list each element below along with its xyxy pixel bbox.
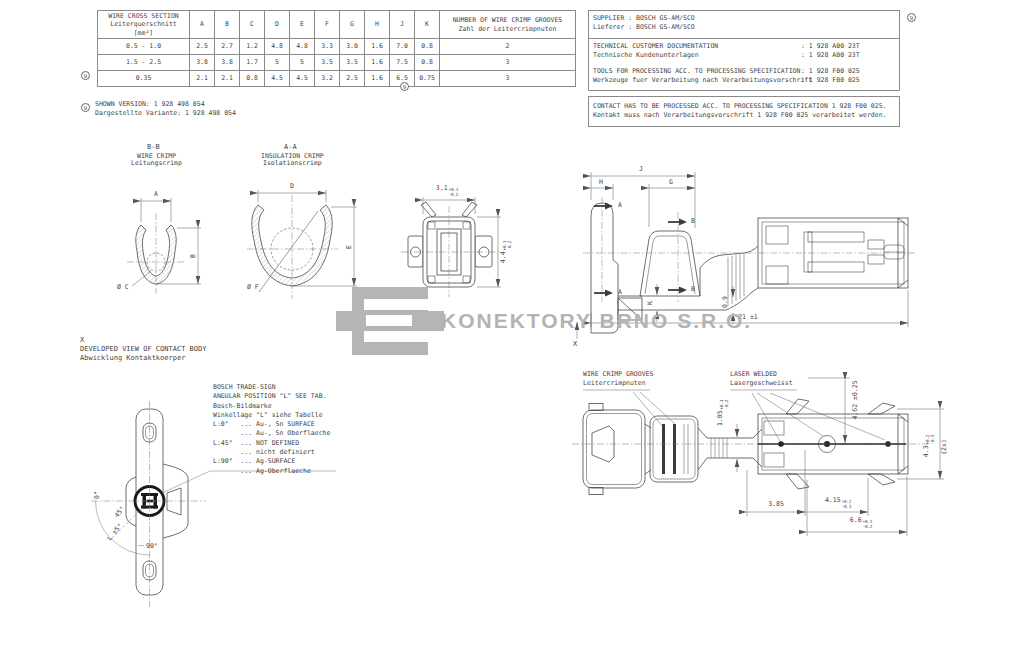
header-col-a: A (190, 11, 215, 39)
tools-label-de: Werkzeuge fuer Verarbeitung nach Verarbe… (593, 76, 812, 84)
header-grooves: NUMBER OF WIRE CRIMP GROOVES Zahl der Le… (440, 11, 576, 39)
dim-label-dia-c: Ø C (117, 283, 129, 291)
header-col-h: H (365, 11, 390, 39)
aa-subtitle-de: Isolationscrimp (263, 159, 322, 167)
header-wire-cross-section: WIRE CROSS SECTION Leiterquerschnitt [mm… (98, 11, 190, 39)
watermark-company-name: KONEKTORY BRNO S.R.O. (441, 309, 752, 333)
dim-4-4: 4.4+0.1-0.2 (499, 241, 512, 263)
dim-label-h: H (599, 178, 603, 186)
dim-label-dia-f: Ø F (247, 283, 259, 291)
header-col-c: C (240, 11, 265, 39)
header-col-e: E (290, 11, 315, 39)
bb-title: B-B (147, 143, 160, 152)
tools-number: : 1 928 F00 025 (801, 67, 860, 75)
header-col-k: K (415, 11, 440, 39)
dim-0-9: 0.9 (721, 296, 729, 308)
dim-2x: (2x) (940, 439, 948, 455)
bb-subtitle-de: Leitungscrimp (131, 159, 182, 167)
section-mark-b: B (691, 217, 695, 225)
developed-view-mark: X (80, 336, 84, 345)
supplier-label-de: Lieferer : BOSCH GS-AM/SCO (593, 23, 695, 31)
header-col-j: J (390, 11, 415, 39)
laser-welded-label-en: LASER WELDED (730, 370, 777, 378)
header-col-f: F (315, 11, 340, 39)
shown-version-de: Dargestellte Variante: 1 928 498 054 (95, 109, 236, 117)
shown-version-en: SHOWN VERSION: 1 928 498 054 (95, 100, 205, 108)
laser-welded-label-de: Lasergeschweisst (730, 379, 793, 387)
grooves-label-de: Leitercrimpnuten (583, 379, 646, 387)
section-mark-a: A (618, 201, 622, 209)
dim-4-15: 4.15+0.2-0.3 (825, 496, 851, 509)
table-row: 1.5 - 2.5 3.8 3.8 1.7 5 5 3.5 3.5 1.6 7.… (98, 55, 576, 71)
section-mark-a: A (618, 288, 622, 296)
developed-view-title-en: DEVELOPED VIEW OF CONTACT BODY (80, 345, 206, 354)
dim-4-3: 4.3+0.2-0.3 (922, 435, 935, 457)
trade-sign-note: BOSCH TRADE-SIGN ANGULAR POSITION "L" SE… (213, 383, 330, 476)
table-row: 0.35 2.1 2.1 0.8 4.5 4.5 3.2 2.5 1.6 6.5… (98, 71, 576, 87)
dim-label-e: E (345, 245, 353, 249)
tools-label-en: TOOLS FOR PROCESSING ACC. TO PROCESSING … (593, 67, 800, 75)
angle-90: 90° (146, 542, 158, 550)
header-col-b: B (215, 11, 240, 39)
bottom-view-leaders (583, 390, 885, 441)
dim-label-j: J (639, 165, 643, 173)
bottom-view-dimensions (737, 378, 944, 536)
dim-1-05: 1.05+0.1-0.2 (716, 400, 729, 426)
divider (589, 38, 899, 39)
dim-3-1: 3.1+0.1-0.2 (436, 184, 458, 197)
dim-6-6: 6.6+0.1-0.2 (850, 516, 872, 529)
tools-number: : 1 928 F00 025 (801, 76, 860, 84)
dim-label-d: D (290, 182, 294, 190)
contact-note-en: CONTACT HAS TO BE PROCESSED ACC. TO PROC… (593, 102, 887, 110)
side-view-section-arrows (594, 203, 687, 297)
table-header-row: WIRE CROSS SECTION Leiterquerschnitt [mm… (98, 11, 576, 39)
section-mark-b: B (691, 285, 695, 293)
logo-left-tab (336, 311, 352, 331)
contact-note-de: Kontakt muss nach Verarbeitungsvorschrif… (593, 111, 887, 119)
dim-3-85: 3.85 (768, 500, 784, 508)
processing-note-box: CONTACT HAS TO BE PROCESSED ACC. TO PROC… (588, 96, 900, 127)
angle-0: 0° (93, 491, 101, 499)
technical-drawing-page: { "watermark": {"company": "KONEKTORY BR… (0, 0, 1024, 654)
grooves-label-en: WIRE CRIMP GROOVES (583, 370, 653, 378)
ref-marker-9: 9 (400, 82, 409, 91)
front-view-drawing (408, 202, 492, 287)
dim-4-62: 4.62 ±0.25 (851, 380, 859, 419)
bottom-view-drawing (583, 399, 908, 495)
aa-title: A-A (284, 143, 297, 152)
ref-marker-9: 9 (81, 71, 90, 80)
dim-label-k: K (646, 301, 654, 305)
wire-cross-section-table: WIRE CROSS SECTION Leiterquerschnitt [mm… (97, 10, 576, 87)
header-col-g: G (340, 11, 365, 39)
ref-marker-9: 9 (81, 103, 90, 112)
side-view-centerlines (583, 197, 916, 302)
view-mark-x: X (573, 340, 577, 349)
doc-number: : 1 928 A00 23T (801, 42, 860, 50)
supplier-info-box: SUPPLIER : BOSCH GS-AM/SCO Lieferer : BO… (588, 10, 900, 91)
ref-marker-9: 9 (907, 13, 916, 22)
dim-label-g: G (669, 178, 673, 186)
supplier-label-en: SUPPLIER : BOSCH GS-AM/SCO (593, 14, 695, 22)
doc-label-en: TECHNICAL CUSTOMER DOCUMENTATION (593, 42, 718, 50)
dim-label-b: B (189, 254, 197, 258)
table-row: 0.5 - 1.0 2.5 2.7 1.2 4.8 4.8 3.3 3.0 1.… (98, 39, 576, 55)
developed-view-title-de: Abwicklung Kontaktkoerper (80, 354, 185, 363)
doc-number: : 1 928 A00 23T (801, 51, 860, 59)
doc-label-de: Technische Kundenunterlagen (593, 51, 699, 59)
dim-label-a: A (154, 190, 158, 198)
header-col-d: D (265, 11, 290, 39)
